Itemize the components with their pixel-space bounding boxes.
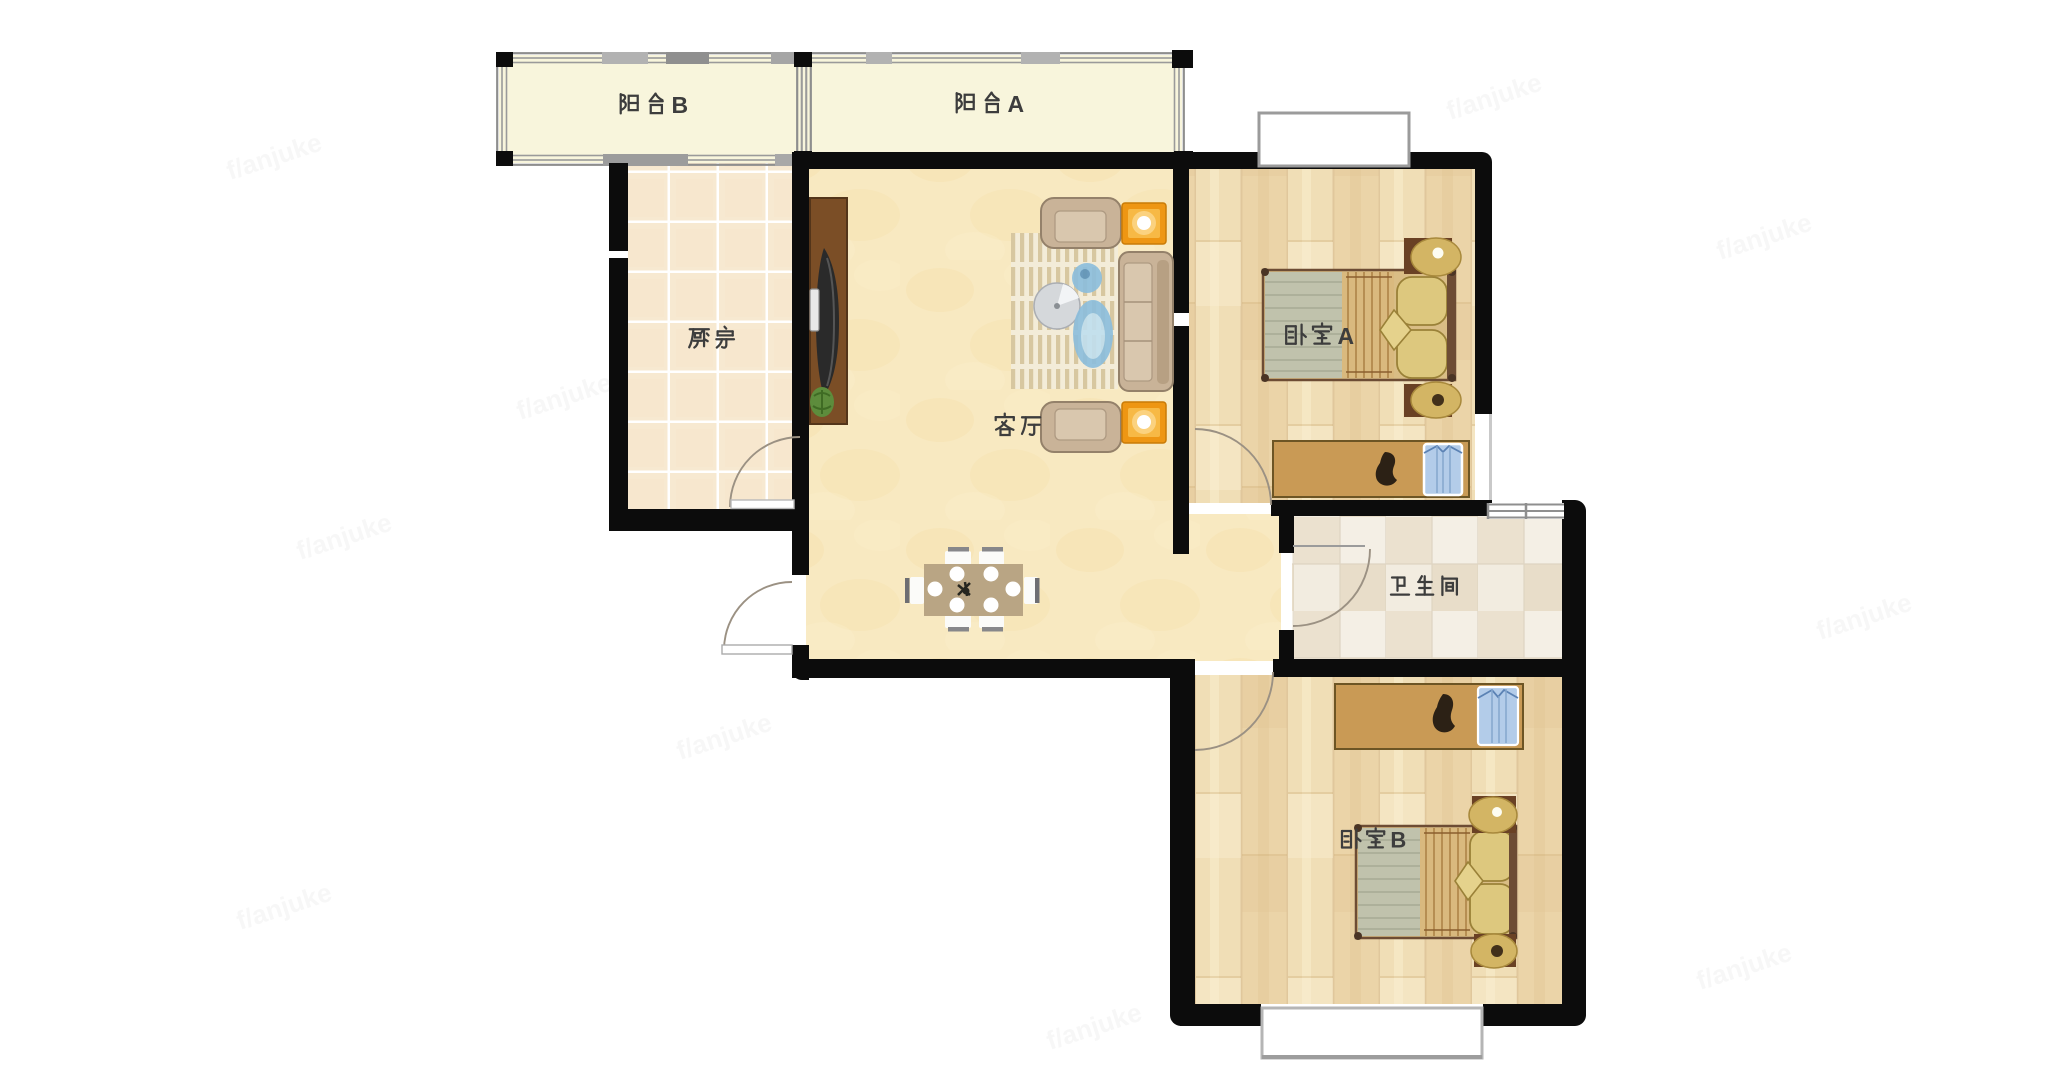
svg-text:A: A	[1338, 323, 1355, 349]
svg-text:B: B	[1390, 828, 1406, 853]
svg-text:A: A	[1008, 91, 1025, 117]
svg-text:B: B	[672, 92, 689, 118]
